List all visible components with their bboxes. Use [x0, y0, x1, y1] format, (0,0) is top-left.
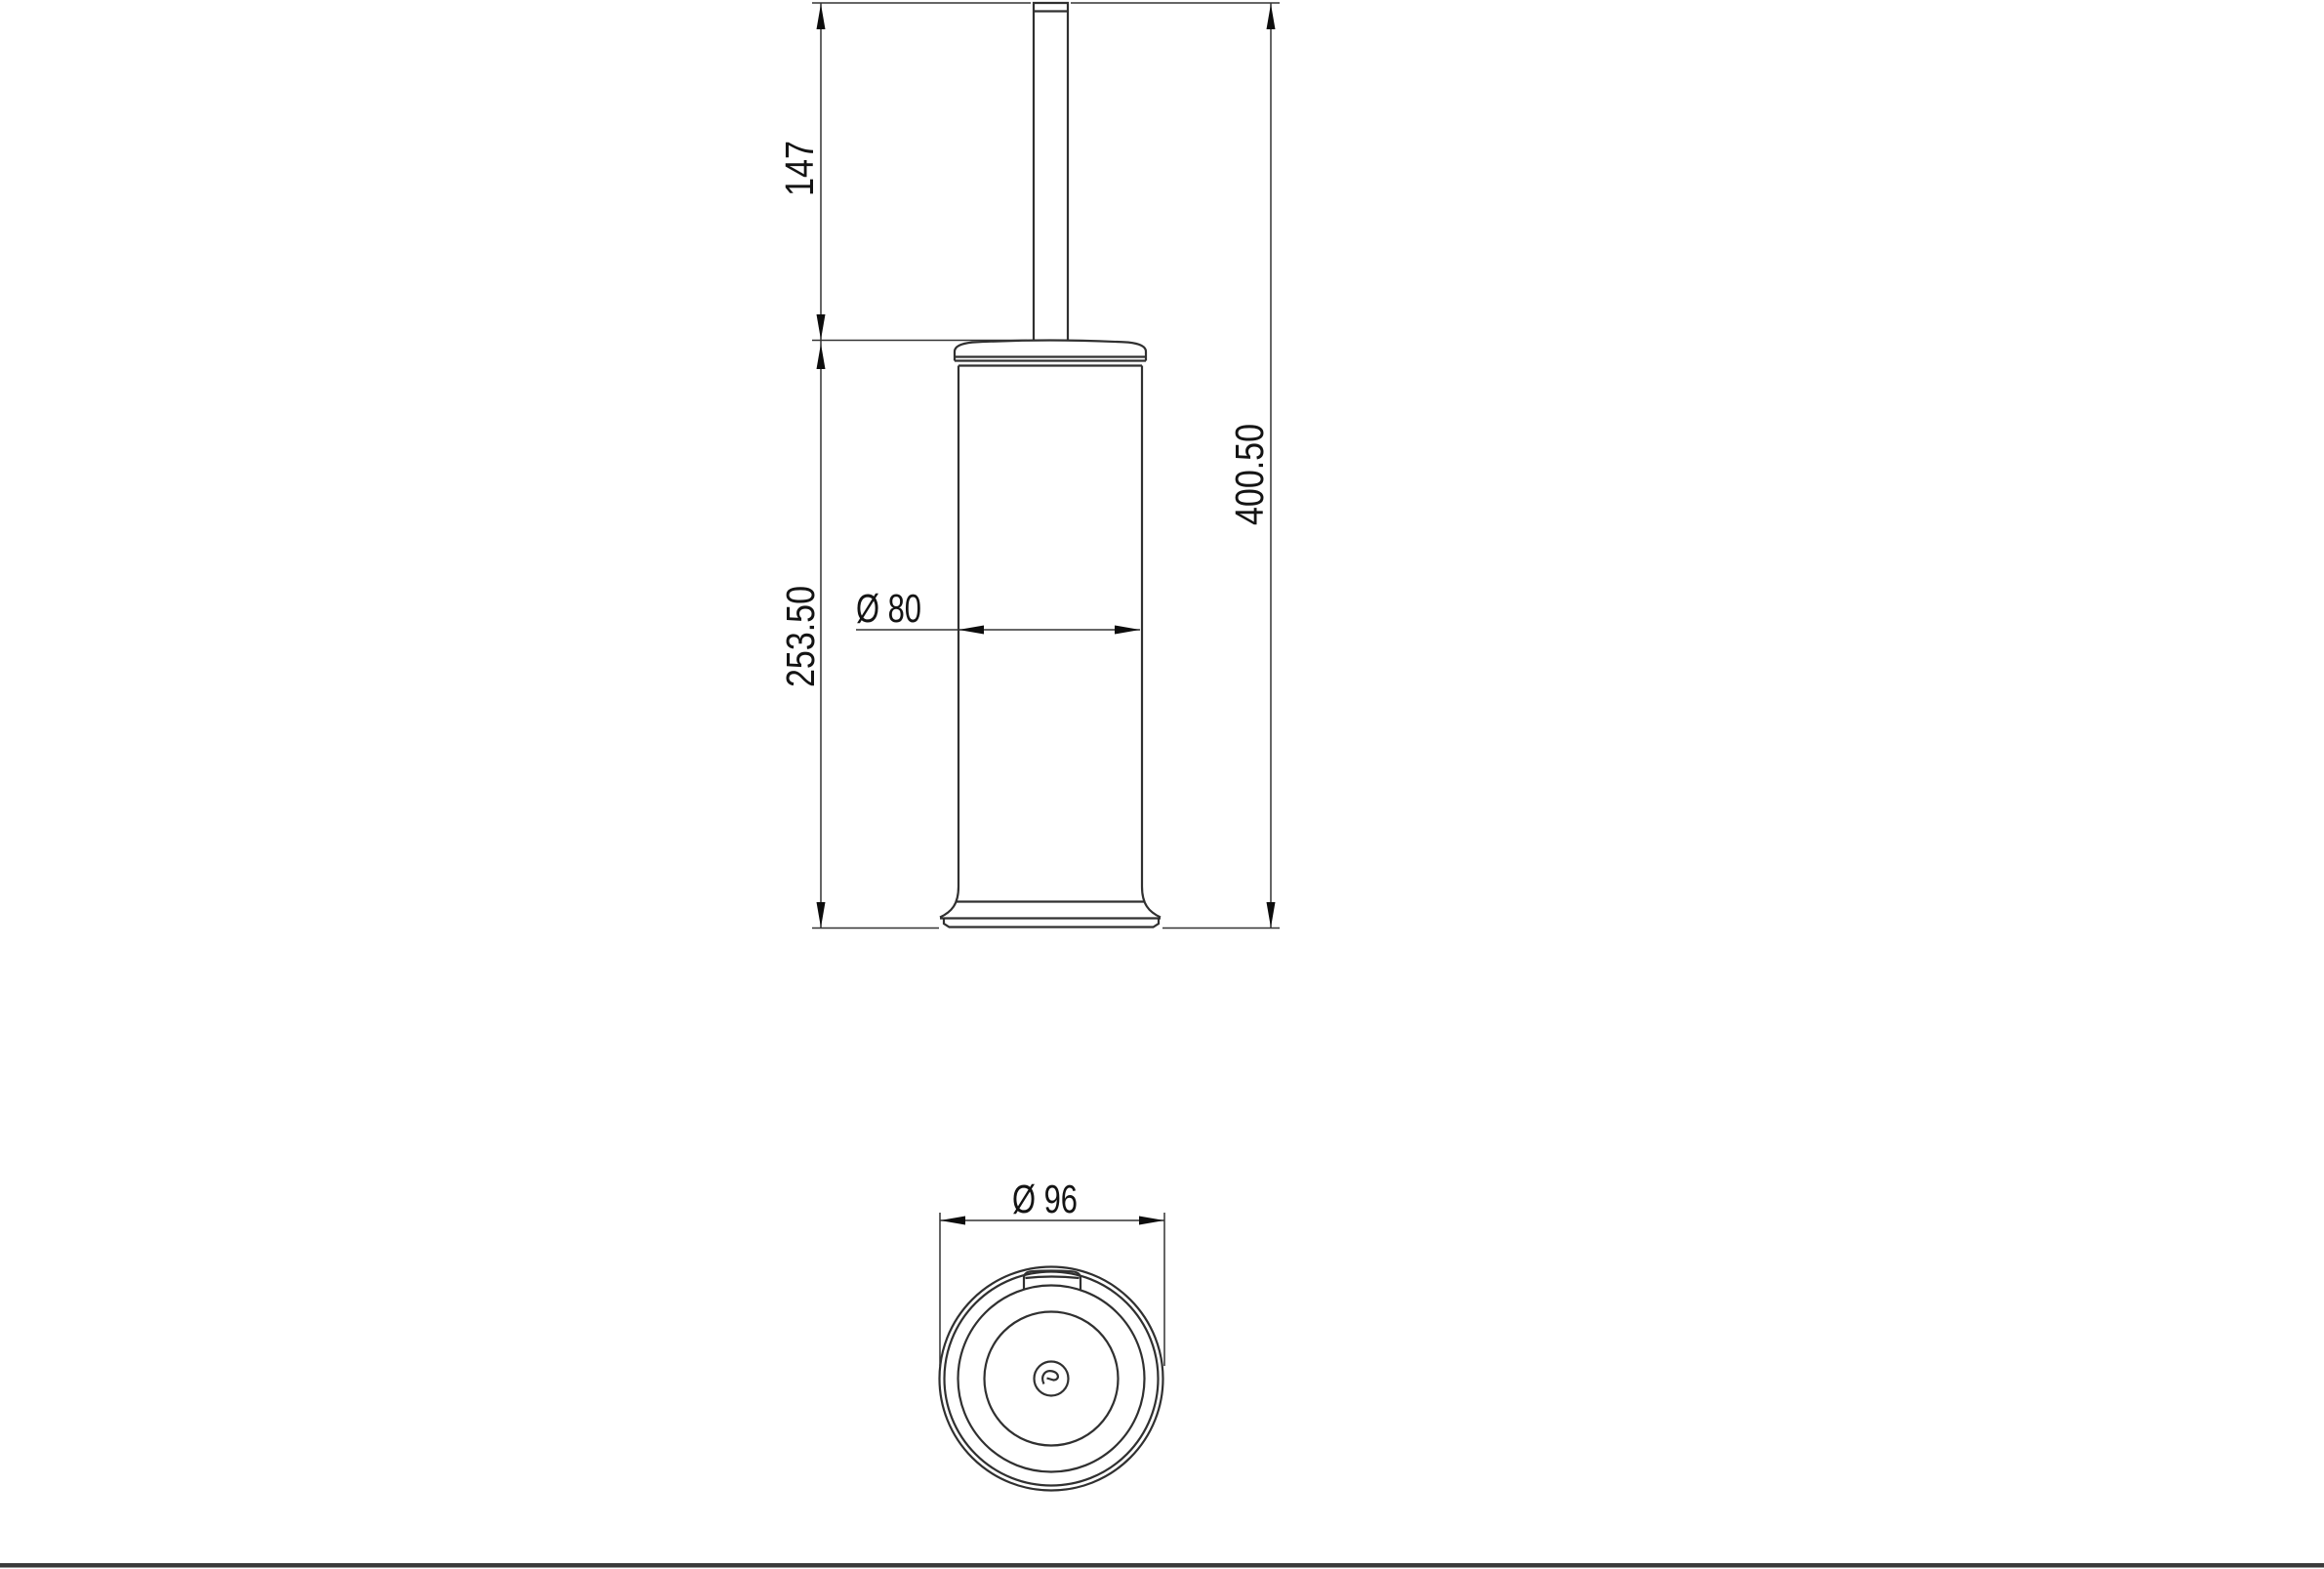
canister-body: [940, 366, 1161, 928]
top-view-circles: [940, 1267, 1163, 1491]
drawing-sheet: 147 253.50 400.50 Ø 80: [0, 0, 2324, 1569]
arrowhead-down: [817, 902, 826, 928]
top-view: Ø 96: [940, 1177, 1165, 1491]
base-plate-outline: [944, 919, 1159, 928]
base-flare-left: [940, 887, 958, 918]
handle-center-detail: [1042, 1371, 1058, 1383]
dimension-label-400-50: 400.50: [1227, 424, 1272, 525]
dimension-handle-height: 147: [777, 3, 1280, 928]
arrowhead-left: [940, 1217, 965, 1225]
front-view: 147 253.50 400.50 Ø 80: [777, 3, 1280, 929]
dimension-label-dia-96: Ø 96: [1012, 1177, 1078, 1221]
brush-handle-rod: [1034, 3, 1068, 341]
arrowhead-up: [817, 4, 826, 29]
dimension-label-dia-80: Ø 80: [856, 586, 921, 631]
arrowhead-left: [958, 626, 984, 635]
bottom-border-line: [0, 1563, 2324, 1568]
dimension-container-height: 253.50: [778, 344, 939, 929]
dimension-label-253-50: 253.50: [778, 586, 823, 687]
arrowhead-right: [1115, 626, 1140, 635]
arrowhead-right: [1139, 1217, 1164, 1225]
rod-outline: [1034, 3, 1068, 341]
arrowhead-down: [1267, 902, 1276, 928]
arrowhead-up: [1267, 4, 1276, 29]
lid-tab-inner-line: [1026, 1277, 1080, 1279]
base-flare-right: [1142, 887, 1161, 918]
dimension-body-diameter: Ø 80: [856, 586, 1140, 635]
canister-lid: [955, 341, 1146, 361]
dimension-label-147: 147: [777, 141, 822, 196]
arrowhead-down: [817, 314, 826, 340]
dimension-total-height: 400.50: [1162, 3, 1280, 929]
arrowhead-up: [817, 344, 826, 369]
